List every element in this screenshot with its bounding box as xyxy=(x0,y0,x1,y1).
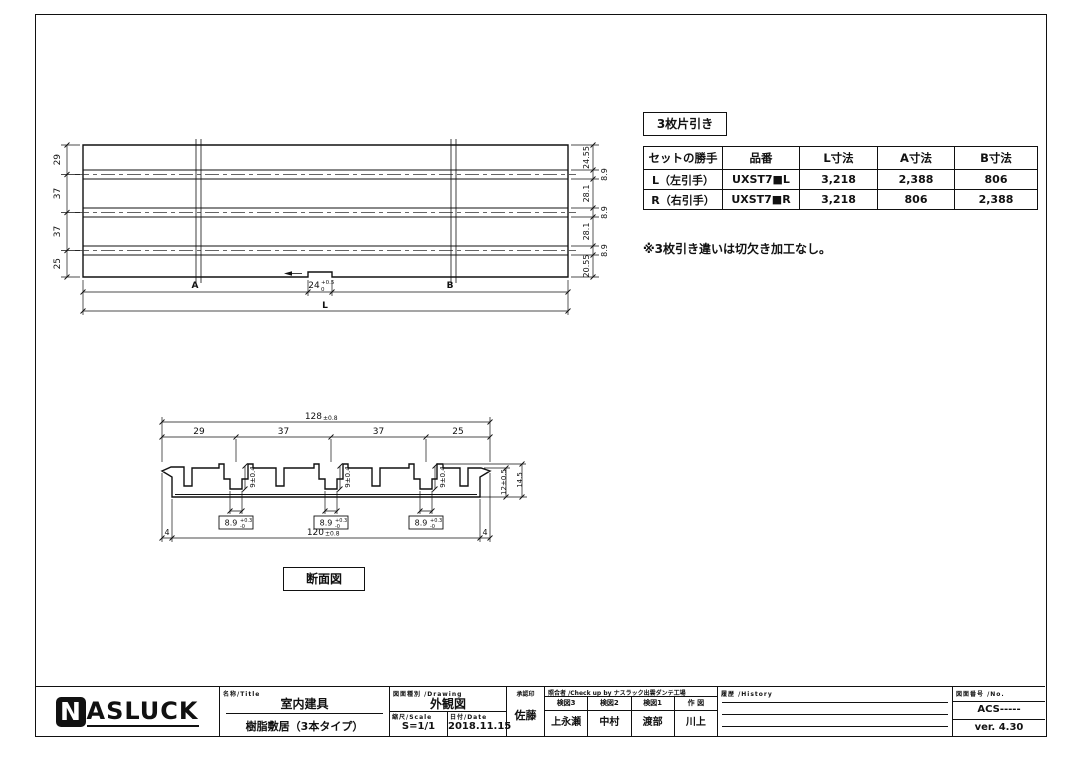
plan-dim-a: A xyxy=(192,281,199,291)
date-value: 2018.11.15 xyxy=(448,721,506,732)
title-block-name-cell: 名称/Title 室内建具 樹脂敷居（3本タイプ） xyxy=(220,687,390,736)
plan-dim-ticks xyxy=(65,143,596,314)
spec-col-header: 品番 xyxy=(723,147,800,170)
title-block-number-cell: 図面番号 /No. ACS----- ver. 4.30 xyxy=(953,687,1045,736)
section-edge-dim-left: 4 xyxy=(164,528,169,537)
spec-col-header: セットの勝手 xyxy=(644,147,723,170)
scale-subcell: 縮尺/Scale S=1/1 xyxy=(390,711,448,736)
drawing-version: ver. 4.30 xyxy=(953,722,1045,733)
product-name: 室内建具 xyxy=(220,695,389,712)
number-cell-divider-1 xyxy=(953,701,1045,702)
spec-col-header: B寸法 xyxy=(955,147,1038,170)
date-label: 日付/Date xyxy=(448,711,506,721)
drawing-number-value: ACS----- xyxy=(953,704,1045,715)
plan-dim-b: B xyxy=(447,281,454,291)
spec-table-row-left: L（左引手） UXST7■L 3,218 2,388 806 xyxy=(644,170,1038,190)
checker-name-4: 川上 xyxy=(675,710,717,736)
section-bottom-dim-tol: ±0.8 xyxy=(325,531,340,538)
section-view: 128 ±0.8 29 37 37 25 9±0.4 9±0.4 9±0.4 8… xyxy=(160,412,528,542)
section-bottom-dim: 120 xyxy=(307,528,324,538)
notch-arrowhead xyxy=(284,271,292,276)
check-header-1: 検図3 xyxy=(545,697,588,710)
plan-break-lines xyxy=(196,139,456,283)
spec-title-box: 3枚片引き xyxy=(643,112,727,136)
spec-cell: R（右引手） xyxy=(644,190,723,210)
approval-stamp-name: 佐藤 xyxy=(507,698,544,732)
plan-right-dim-2: 28.1 xyxy=(582,185,591,203)
spec-table-header-row: セットの勝手 品番 L寸法 A寸法 B寸法 xyxy=(644,147,1038,170)
spec-table-row-right: R（右引手） UXST7■R 3,218 806 2,388 xyxy=(644,190,1038,210)
plan-left-dim-4: 25 xyxy=(53,258,63,269)
history-line-2 xyxy=(722,714,948,715)
spec-cell: 806 xyxy=(878,190,955,210)
spec-note: ※3枚引き違いは切欠き加工なし。 xyxy=(643,240,831,257)
plan-right-dim-3: 28.1 xyxy=(582,223,591,241)
scale-label: 縮尺/Scale xyxy=(390,711,447,721)
section-total-height-dim: 14.5 xyxy=(516,472,524,488)
drawing-number-label: 図面番号 /No. xyxy=(956,689,1005,698)
history-line-1 xyxy=(722,702,948,703)
product-subname: 樹脂敷居（3本タイプ） xyxy=(220,718,389,734)
number-cell-divider-2 xyxy=(953,719,1045,720)
boxed-dim-2: 8.9 xyxy=(320,519,333,528)
checker-name-3: 渡部 xyxy=(632,710,675,736)
plan-notch-tol-sub: 0 xyxy=(321,287,325,293)
title-block-check-cell: 照合者 /Check up by ナスラック出雲ダンテ工場 検図3 検図2 検図… xyxy=(545,687,718,736)
check-name-row: 上永瀬 中村 渡部 川上 xyxy=(545,710,717,736)
spec-cell: L（左引手） xyxy=(644,170,723,190)
plan-rail-centerlines xyxy=(75,175,576,251)
name-cell-divider xyxy=(226,713,383,714)
plan-notch-dim: 24 xyxy=(308,281,320,291)
groove-depth-dim-1: 9±0.4 xyxy=(249,466,257,488)
check-header-row: 検図3 検図2 検図1 作 図 xyxy=(545,696,717,711)
spec-cell: 806 xyxy=(955,170,1038,190)
spec-col-header: L寸法 xyxy=(800,147,878,170)
checker-name-2: 中村 xyxy=(588,710,631,736)
section-view-label: 断面図 xyxy=(283,567,365,591)
check-header-2: 検図2 xyxy=(588,697,631,710)
spec-cell: 2,388 xyxy=(878,170,955,190)
plan-rail-dim-1: 8.9 xyxy=(600,168,609,181)
title-block-history-cell: 履歴 /History xyxy=(718,687,953,736)
history-line-3 xyxy=(722,726,948,727)
groove-depth-dim-2: 9±0.4 xyxy=(344,466,352,488)
section-inner-height-dim: 12±0.5 xyxy=(500,469,508,495)
title-block-drawing-cell: 図面種別 /Drawing 外観図 縮尺/Scale S=1/1 日付/Date… xyxy=(390,687,507,736)
technical-drawing-canvas: 29 37 37 25 24.55 28.1 28.1 20.55 8.9 8.… xyxy=(0,0,1080,764)
date-subcell: 日付/Date 2018.11.15 xyxy=(448,711,506,736)
spec-cell: 2,388 xyxy=(955,190,1038,210)
plan-right-dim-1: 24.55 xyxy=(582,146,591,169)
spec-table: セットの勝手 品番 L寸法 A寸法 B寸法 L（左引手） UXST7■L 3,2… xyxy=(643,146,1038,210)
spec-cell: 3,218 xyxy=(800,170,878,190)
section-chain-dim-4: 25 xyxy=(452,427,463,437)
boxed-dim-1-sub: -0 xyxy=(240,524,245,530)
section-chain-dim-1: 29 xyxy=(193,427,205,437)
plan-left-dim-2: 37 xyxy=(53,188,63,199)
scale-value: S=1/1 xyxy=(390,721,447,732)
plan-rail-dim-2: 8.9 xyxy=(600,206,609,219)
plan-rail-dim-3: 8.9 xyxy=(600,244,609,257)
plan-view: 29 37 37 25 24.55 28.1 28.1 20.55 8.9 8.… xyxy=(53,139,609,315)
boxed-dim-3-sub: -0 xyxy=(430,524,435,530)
check-header-3: 検図1 xyxy=(632,697,675,710)
nasluck-logo-text: ASLUCK xyxy=(87,697,199,727)
drawing-type-value: 外観図 xyxy=(390,695,506,712)
history-label: 履歴 /History xyxy=(721,689,773,698)
section-edge-dim-right: 4 xyxy=(482,528,487,537)
title-block: NASLUCK 名称/Title 室内建具 樹脂敷居（3本タイプ） 図面種別 /… xyxy=(35,686,1045,736)
groove-depth-dim-3: 9±0.4 xyxy=(439,466,447,488)
boxed-dim-1: 8.9 xyxy=(225,519,238,528)
plan-part-outline xyxy=(83,145,568,277)
plan-dim-l: L xyxy=(322,301,328,311)
plan-right-dim-4: 20.55 xyxy=(582,255,591,278)
spec-cell: UXST7■R xyxy=(723,190,800,210)
section-top-dim-tol: ±0.8 xyxy=(323,415,338,422)
checker-name-1: 上永瀬 xyxy=(545,710,588,736)
title-block-logo-cell: NASLUCK xyxy=(35,687,220,736)
spec-cell: 3,218 xyxy=(800,190,878,210)
section-chain-dim-2: 37 xyxy=(278,427,289,437)
boxed-dim-3: 8.9 xyxy=(415,519,428,528)
plan-notch-tol-sup: +0.5 xyxy=(321,280,335,286)
check-header-4: 作 図 xyxy=(675,697,717,710)
nasluck-logo-n: N xyxy=(56,697,86,727)
drawing-sheet: { "plan": { "left_dims": ["29", "37", "3… xyxy=(0,0,1080,764)
title-block-approval-cell: 承認印 佐藤 xyxy=(507,687,545,736)
spec-col-header: A寸法 xyxy=(878,147,955,170)
section-top-dim: 128 xyxy=(305,412,322,422)
plan-left-dim-1: 29 xyxy=(53,154,63,166)
plan-left-dim-3: 37 xyxy=(53,226,63,237)
nasluck-logo: NASLUCK xyxy=(35,687,219,736)
approval-stamp-label: 承認印 xyxy=(507,687,544,698)
spec-cell: UXST7■L xyxy=(723,170,800,190)
boxed-dim-2-sub: -0 xyxy=(335,524,340,530)
section-chain-dim-3: 37 xyxy=(373,427,384,437)
